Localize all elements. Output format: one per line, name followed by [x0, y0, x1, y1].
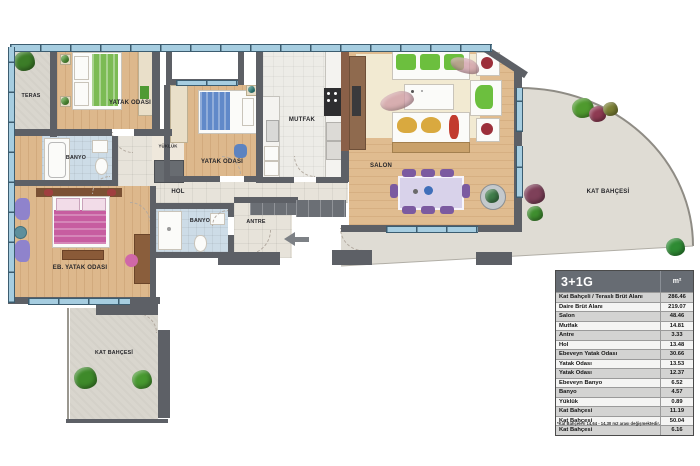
wall-block: [296, 200, 346, 217]
dining-chair: [402, 206, 416, 214]
entrance-arrow-head-icon: [284, 232, 295, 246]
cushion-green: [396, 54, 416, 70]
floor-plant-pot: [480, 184, 506, 210]
cushion-yellow: [421, 117, 441, 133]
dining-chair: [462, 184, 470, 198]
chair-blue: [234, 144, 247, 158]
kitchen-appliance: [264, 161, 279, 176]
room-label-master-bedroom: EB. YATAK ODASI: [53, 265, 107, 271]
wall-block: [476, 252, 512, 265]
wall: [8, 180, 118, 186]
bed-pillow: [242, 98, 254, 126]
cushion-yellow: [397, 117, 417, 133]
burner: [327, 92, 330, 95]
burner: [334, 92, 337, 95]
floor-plan: TERAS YATAK ODASI YATAK ODASI MUTFAK SAL…: [0, 0, 700, 466]
unit-header: m²: [660, 271, 693, 292]
master-floor-strip: [12, 136, 42, 186]
window-master-south: [28, 298, 130, 305]
garden-plant-red-icon: [524, 184, 545, 204]
bed-blanket-pink: [54, 210, 106, 244]
toilet-icon: [95, 158, 108, 175]
room-label-bedroom1: YATAK ODASI: [109, 100, 151, 106]
dining-chair: [421, 169, 435, 177]
room-label-bathroom1: BANYO: [66, 155, 86, 161]
kitchen-sink: [266, 120, 279, 142]
wall: [164, 85, 170, 182]
plant-icon: [61, 97, 69, 105]
room-label-bedroom2: YATAK ODASI: [201, 159, 243, 165]
garden-fence-line: [67, 308, 69, 420]
wall: [112, 136, 118, 186]
area-table-body: Kat Bahçeli / Teraslı Brüt Alanı286.46 D…: [556, 292, 693, 435]
table-row: Mutfak14.81: [556, 321, 693, 331]
garden-bush-icon: [132, 370, 152, 389]
bed-pillow: [74, 56, 89, 80]
facade-window-left: [8, 47, 15, 303]
room-label-salon: SALON: [370, 163, 392, 169]
shower: [158, 211, 182, 250]
burner: [334, 99, 337, 102]
stove-icon: [324, 88, 341, 116]
wall: [66, 419, 168, 423]
wall: [228, 203, 234, 217]
wall: [150, 203, 234, 209]
room-label-closet: YÜKLÜK: [158, 144, 177, 149]
garden-plant-olive-icon: [603, 102, 618, 116]
wall-wood-panel: [341, 47, 349, 151]
area-table: 3+1G m² Kat Bahçeli / Teraslı Brüt Alanı…: [555, 270, 694, 436]
side-table-round: [14, 226, 27, 239]
armchair: [470, 80, 502, 116]
bed-pillow: [56, 198, 80, 211]
plan-type-title: 3+1G: [556, 275, 660, 289]
kitchen-appliance: [264, 146, 279, 161]
sofa-bottom: [392, 112, 470, 144]
tv-icon: [352, 86, 361, 116]
dining-chair: [402, 169, 416, 177]
table-row: Hol13.48: [556, 340, 693, 350]
table-row: Antre3.33: [556, 330, 693, 340]
wall: [8, 129, 112, 136]
room-label-garden-bottom: KAT BAHÇESİ: [95, 350, 133, 356]
table-decor: [411, 90, 414, 93]
room-label-bathroom2: BANYO: [190, 218, 210, 224]
wall: [158, 330, 170, 418]
wall: [256, 47, 263, 182]
dining-chair: [440, 169, 454, 177]
table-row: Banyo4.57: [556, 387, 693, 397]
table-row: Daire Brüt Alanı219.07: [556, 302, 693, 312]
room-label-entry: ANTRE: [246, 219, 265, 225]
entry-wardrobe: [250, 203, 296, 215]
table-row: Kat Bahçesi6.16: [556, 425, 693, 435]
wall: [341, 151, 349, 182]
bed-blanket-blue: [200, 92, 230, 130]
table-row: Salon48.46: [556, 311, 693, 321]
table-row: Kat Bahçesi11.19: [556, 406, 693, 416]
wall-block: [218, 252, 280, 265]
bed-blanket-green: [92, 54, 118, 106]
burner: [327, 99, 330, 102]
wardrobe: [170, 85, 188, 143]
centerpiece-icon: [424, 186, 433, 195]
chair-pink: [125, 254, 138, 267]
wall-block: [332, 250, 372, 265]
window-salon-south: [386, 226, 478, 233]
table-row: Kat Bahçeli / Teraslı Brüt Alanı286.46: [556, 292, 693, 302]
plant-icon: [248, 86, 255, 93]
cushion-green: [475, 85, 493, 109]
console-table: [392, 142, 470, 153]
bench: [62, 250, 104, 260]
window: [176, 80, 238, 86]
bed-pillow: [74, 82, 89, 106]
entrance-arrow-icon: [294, 237, 309, 242]
table-row: Yüklük0.89: [556, 397, 693, 407]
dining-chair: [390, 184, 398, 198]
dining-table: [398, 176, 464, 210]
wall: [50, 47, 57, 137]
wardrobe-item: [140, 86, 149, 99]
wall: [164, 176, 220, 182]
table-row: Yatak Odası12.37: [556, 368, 693, 378]
table-footnote: *Kat Bahçeleri 14,64 - 14,30 m2 arası de…: [557, 421, 660, 426]
area-table-header: 3+1G m²: [556, 271, 693, 292]
pillow-red: [44, 189, 53, 196]
table-row: Ebeveyn Banyo6.52: [556, 378, 693, 388]
plant-icon: [485, 189, 499, 203]
window-salon-east: [516, 146, 523, 198]
cushion-green: [420, 54, 440, 70]
room-label-garden-right: KAT BAHÇESİ: [587, 189, 630, 195]
garden-bush-icon: [74, 367, 97, 389]
wall: [152, 47, 160, 136]
bed-pillow: [82, 198, 106, 211]
sink-icon: [92, 140, 108, 153]
kitchen-cabinet: [326, 141, 342, 160]
centerpiece-icon: [413, 189, 418, 194]
garden-plant-green-icon: [666, 238, 685, 256]
room-label-teras: TERAS: [22, 93, 41, 99]
window-salon-east: [516, 88, 523, 132]
decor-red: [481, 57, 493, 69]
side-table: [476, 118, 500, 142]
wall: [238, 47, 244, 85]
teras-plant-icon: [14, 51, 35, 71]
toilet-icon: [194, 235, 207, 252]
wall: [256, 177, 294, 183]
armchair-purple: [14, 198, 30, 220]
armchair-purple: [14, 240, 30, 262]
table-row: Ebeveyn Yatak Odası30.66: [556, 349, 693, 359]
table-decor: [421, 90, 423, 92]
garden-plant-green-icon: [527, 206, 543, 221]
cushion-red: [449, 115, 459, 139]
tub-inner: [48, 142, 66, 178]
plant-icon: [61, 55, 69, 63]
table-row: Yatak Odası13.53: [556, 359, 693, 369]
room-label-kitchen: MUTFAK: [289, 117, 315, 123]
dining-chair: [440, 206, 454, 214]
kitchen-cabinet: [326, 122, 342, 141]
facade-window-top: [10, 44, 492, 52]
decor-red: [481, 123, 493, 135]
drain: [167, 227, 171, 231]
room-label-hall: HOL: [171, 189, 184, 195]
dining-chair: [421, 206, 435, 214]
